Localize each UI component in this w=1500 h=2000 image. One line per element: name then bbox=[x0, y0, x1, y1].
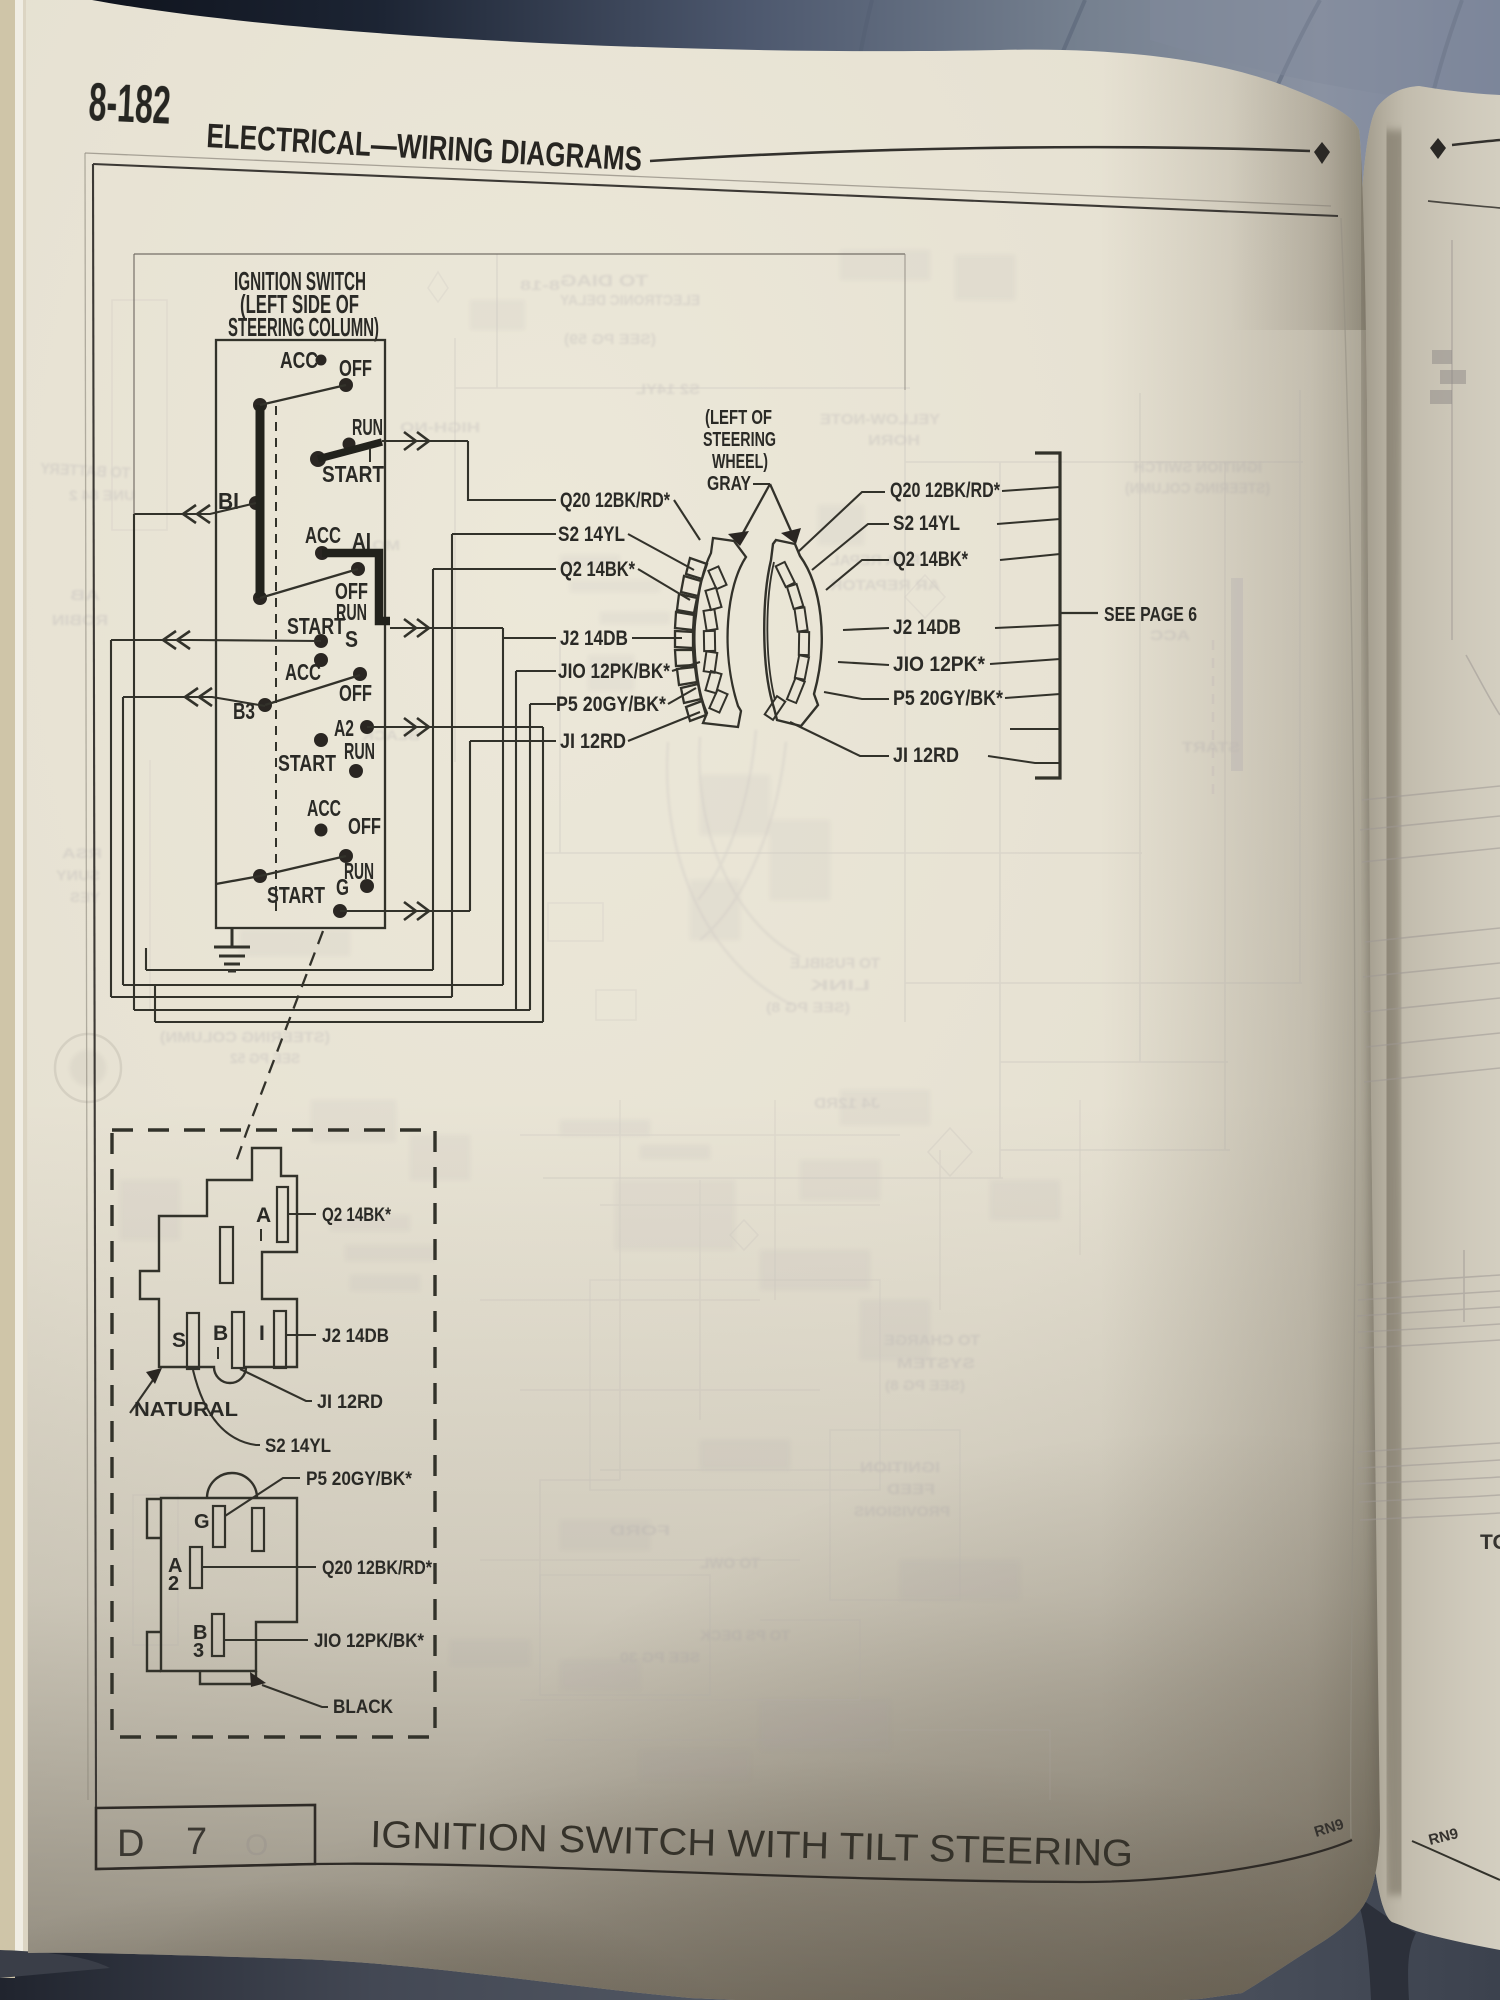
svg-text:Q20 12BK/RD*: Q20 12BK/RD* bbox=[560, 489, 671, 512]
svg-text:YELLOW-NOTE: YELLOW-NOTE bbox=[820, 411, 940, 428]
svg-text:Q2 14BK*: Q2 14BK* bbox=[893, 548, 969, 571]
svg-text:TO: TO bbox=[1480, 1531, 1500, 1554]
svg-text:Q2 14BK*: Q2 14BK* bbox=[560, 558, 636, 581]
svg-text:ELECTRONIC DELAY: ELECTRONIC DELAY bbox=[560, 292, 700, 309]
svg-text:START: START bbox=[287, 613, 345, 639]
svg-text:Q2 14BK*: Q2 14BK* bbox=[322, 1205, 391, 1226]
svg-text:(LEFT OF: (LEFT OF bbox=[705, 407, 772, 429]
svg-text:S2 14YL: S2 14YL bbox=[265, 1436, 331, 1457]
svg-text:JI 12RD: JI 12RD bbox=[893, 744, 959, 767]
svg-text:ACC: ACC bbox=[280, 347, 318, 373]
svg-text:G: G bbox=[336, 874, 349, 900]
svg-text:S2 14YL: S2 14YL bbox=[558, 523, 625, 546]
svg-text:RSA: RSA bbox=[62, 845, 102, 861]
svg-text:OFF: OFF bbox=[339, 680, 372, 706]
svg-text:(SEE PG 8): (SEE PG 8) bbox=[766, 999, 850, 1015]
svg-text:I: I bbox=[259, 1322, 265, 1345]
svg-text:8-182: 8-182 bbox=[87, 72, 172, 136]
svg-text:G: G bbox=[194, 1511, 210, 1533]
svg-text:(SEE PG 59): (SEE PG 59) bbox=[564, 331, 656, 348]
svg-text:PROVISIONS: PROVISIONS bbox=[854, 1503, 950, 1519]
svg-text:8-18: 8-18 bbox=[520, 277, 560, 293]
svg-text:Q20 12BK/RD*: Q20 12BK/RD* bbox=[890, 479, 1001, 502]
svg-text:TO PS DECK: TO PS DECK bbox=[700, 1627, 790, 1643]
svg-text:IGNITION: IGNITION bbox=[860, 1459, 940, 1476]
svg-text:Q20 12BK/RD*: Q20 12BK/RD* bbox=[322, 1558, 433, 1579]
svg-text:S2 14YL: S2 14YL bbox=[636, 381, 700, 398]
svg-text:S2 14YL: S2 14YL bbox=[893, 512, 960, 535]
svg-text:SEE PAGE 6: SEE PAGE 6 bbox=[1104, 604, 1197, 626]
svg-text:JI 12RD: JI 12RD bbox=[317, 1392, 383, 1413]
svg-text:P5 20GY/BK*: P5 20GY/BK* bbox=[893, 687, 1004, 710]
svg-text:FEED: FEED bbox=[887, 1481, 935, 1498]
svg-text:TO FUSIBLE: TO FUSIBLE bbox=[790, 955, 880, 972]
svg-text:START: START bbox=[278, 750, 336, 776]
svg-text:START: START bbox=[322, 461, 384, 487]
svg-text:O: O bbox=[245, 1829, 268, 1862]
svg-text:RUN: RUN bbox=[344, 738, 375, 764]
svg-text:AR REPATOR: AR REPATOR bbox=[830, 577, 940, 594]
svg-text:P5 20GY/BK*: P5 20GY/BK* bbox=[556, 693, 667, 716]
svg-text:BLACK: BLACK bbox=[333, 1697, 393, 1718]
svg-text:JIO 12PK/BK*: JIO 12PK/BK* bbox=[558, 660, 671, 683]
svg-text:RUN: RUN bbox=[352, 414, 383, 440]
svg-text:J2 14DB: J2 14DB bbox=[893, 616, 961, 639]
svg-text:GRAY: GRAY bbox=[707, 473, 752, 495]
svg-text:S: S bbox=[172, 1329, 186, 1352]
svg-text:D: D bbox=[117, 1823, 144, 1865]
svg-text:ROBIN: ROBIN bbox=[52, 612, 108, 629]
svg-text:YES: YES bbox=[70, 889, 100, 905]
svg-text:ACC: ACC bbox=[307, 795, 341, 821]
svg-text:SEE PG 52: SEE PG 52 bbox=[230, 1050, 300, 1066]
svg-text:IGNITION SWITCH: IGNITION SWITCH bbox=[1134, 459, 1262, 476]
svg-text:J2 14DB: J2 14DB bbox=[322, 1326, 389, 1347]
svg-text:JI 12RD: JI 12RD bbox=[560, 730, 626, 753]
svg-text:(STEERING COLUMN): (STEERING COLUMN) bbox=[160, 1029, 330, 1046]
svg-text:JIO 12PK*: JIO 12PK* bbox=[893, 653, 986, 676]
svg-text:ACC: ACC bbox=[1150, 627, 1190, 643]
svg-text:(SEE PG 8): (SEE PG 8) bbox=[885, 1377, 965, 1393]
svg-text:P5 20GY/BK*: P5 20GY/BK* bbox=[306, 1469, 413, 1490]
svg-text:J2 14DB: J2 14DB bbox=[560, 627, 628, 650]
svg-text:LINK: LINK bbox=[810, 977, 870, 994]
svg-text:OFF: OFF bbox=[339, 355, 372, 381]
svg-text:ACC: ACC bbox=[305, 522, 341, 548]
svg-text:JIO 12PK/BK*: JIO 12PK/BK* bbox=[314, 1631, 425, 1652]
svg-text:S: S bbox=[345, 626, 358, 652]
svg-text:TO DIAG: TO DIAG bbox=[560, 273, 648, 290]
svg-text:HIGH-NO: HIGH-NO bbox=[400, 419, 480, 435]
svg-text:UNE 84 2: UNE 84 2 bbox=[69, 487, 135, 503]
svg-text:3: 3 bbox=[193, 1640, 204, 1662]
svg-text:2: 2 bbox=[168, 1573, 179, 1595]
svg-text:WHEEL): WHEEL) bbox=[712, 451, 768, 473]
svg-text:OFF: OFF bbox=[348, 813, 381, 839]
svg-text:HORN: HORN bbox=[868, 432, 920, 449]
svg-text:STEERING COLUMN): STEERING COLUMN) bbox=[228, 312, 379, 342]
svg-text:STEERING: STEERING bbox=[703, 429, 776, 451]
svg-text:START: START bbox=[1182, 739, 1240, 756]
svg-text:START: START bbox=[267, 882, 325, 908]
svg-text:AB: AB bbox=[70, 587, 100, 604]
svg-text:(STEERING COLUMN): (STEERING COLUMN) bbox=[1125, 480, 1270, 497]
svg-text:TO OWL: TO OWL bbox=[700, 1555, 760, 1572]
svg-text:A: A bbox=[256, 1204, 271, 1227]
svg-text:7: 7 bbox=[186, 1821, 207, 1863]
svg-text:NATURAL: NATURAL bbox=[134, 1399, 238, 1421]
svg-text:B: B bbox=[213, 1322, 228, 1345]
